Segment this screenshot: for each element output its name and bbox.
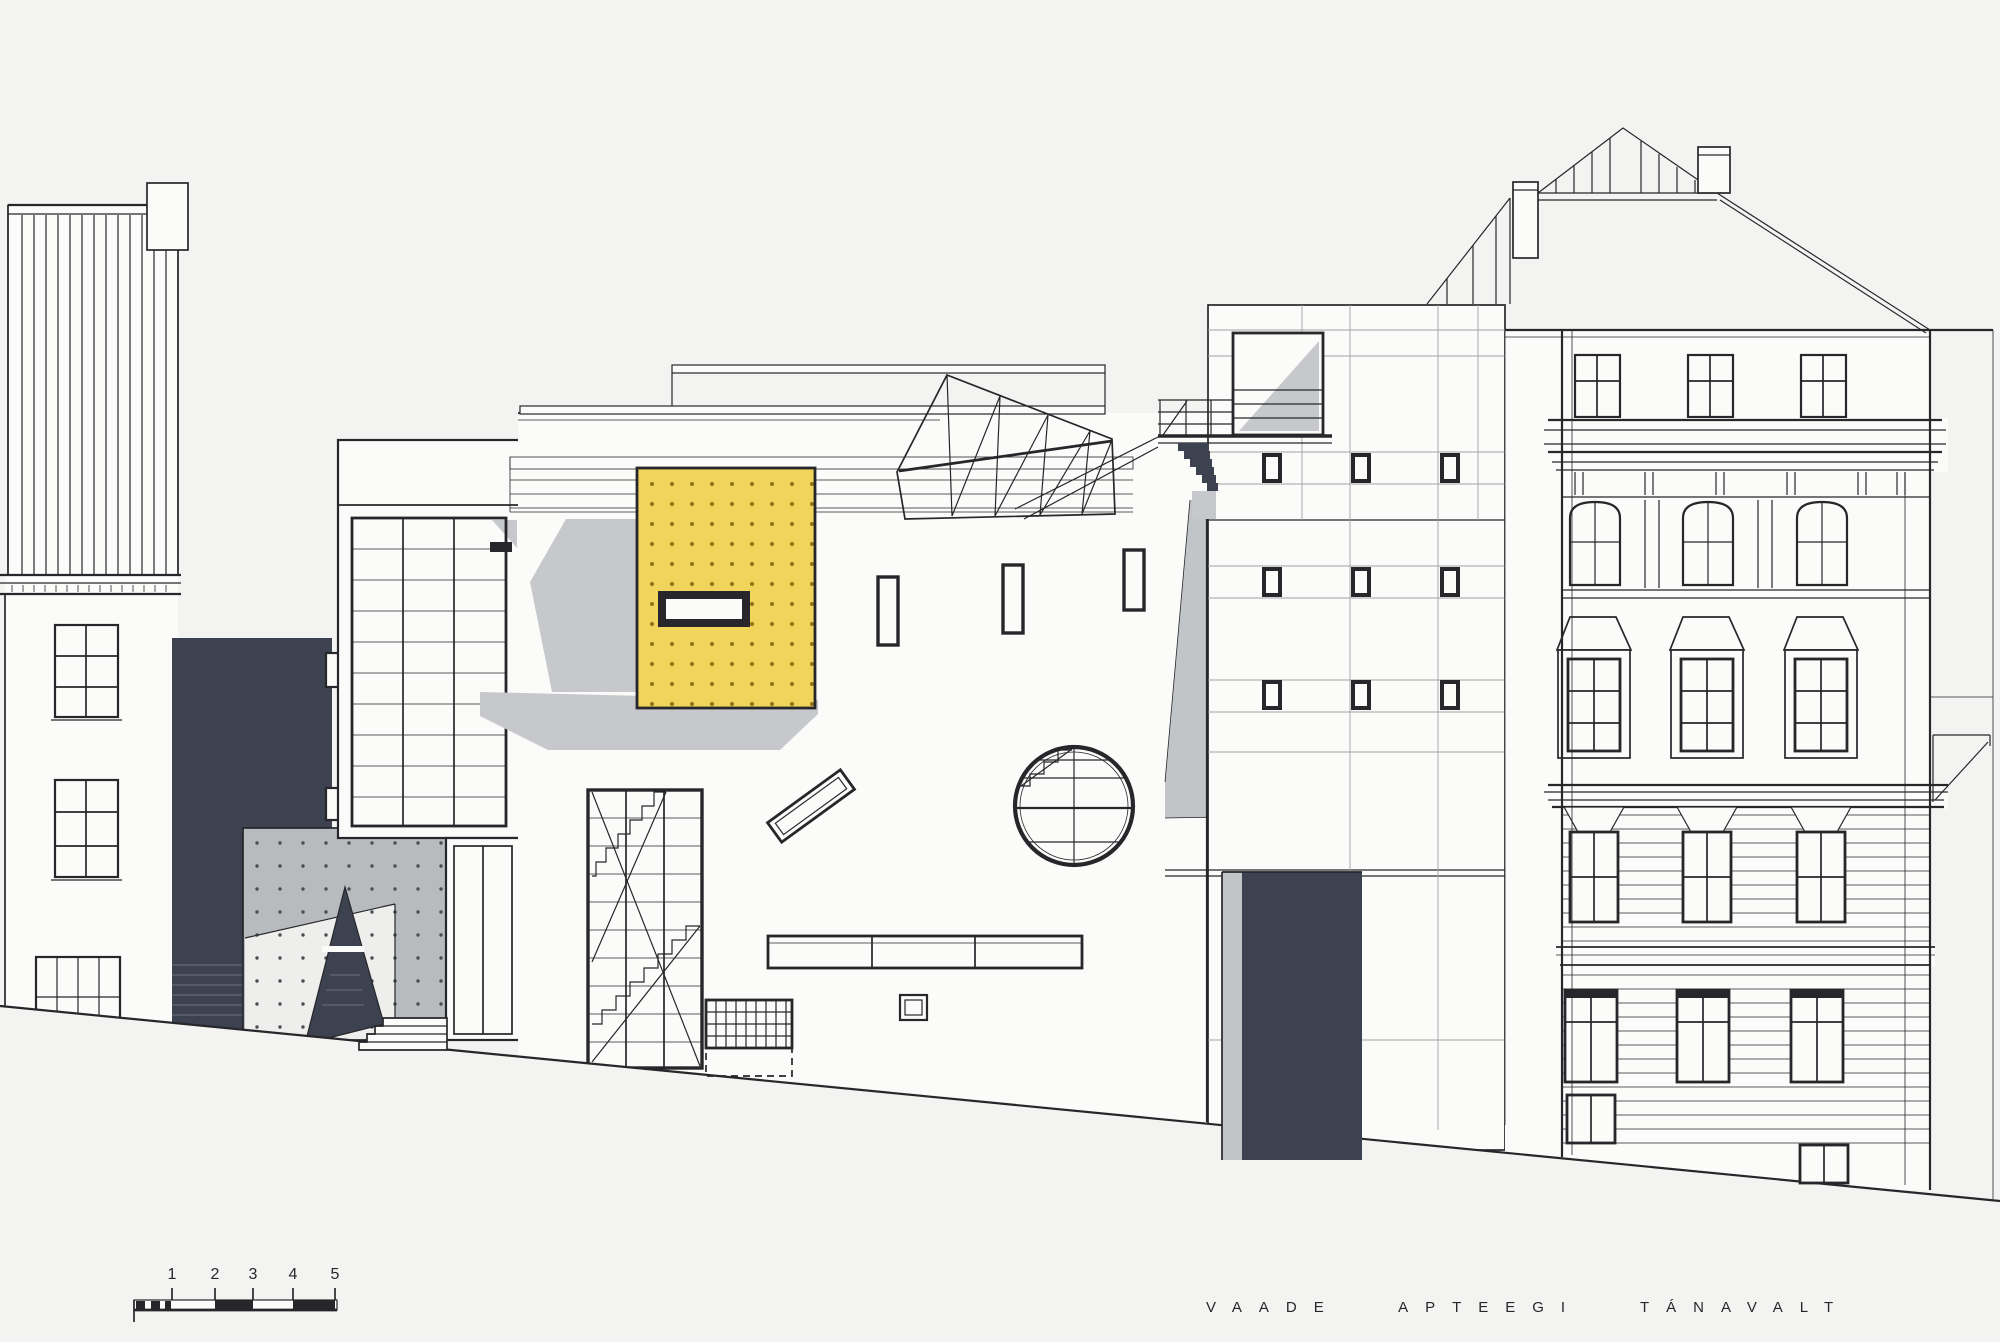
stair-window [588,790,702,1068]
scale-label-3: 3 [249,1266,258,1283]
entry-door [446,838,520,1040]
scale-label-4: 4 [289,1266,298,1283]
yellow-panel [637,468,815,708]
scale-label-1: 1 [168,1266,177,1283]
basement-grille [706,1000,792,1048]
drawing-caption: VAADE APTEEGI TÁNAVALT [1206,1299,1850,1316]
dotted-entrance-panel [243,828,446,1044]
sill-band [1556,945,1935,967]
lower-cornice [1544,783,1948,809]
architectural-elevation-drawing: 1 2 3 4 5 VAADE APTEEGI TÁNAVALT [0,0,2000,1342]
scale-label-5: 5 [331,1266,340,1283]
striped-tower [8,183,188,575]
scale-label-2: 2 [211,1266,220,1283]
dark-retaining-wall [1222,872,1362,1160]
elevation-canvas: 1 2 3 4 5 VAADE APTEEGI TÁNAVALT [0,0,2000,1342]
house-window-upper [51,625,122,720]
rooftop-box [147,183,188,250]
band-window [768,936,1082,968]
left-house [0,575,181,1037]
yellow-panel-slot-window [658,591,750,627]
small-window [900,995,927,1020]
basement-window-right [1800,1145,1848,1183]
house-window-middle [51,780,122,880]
attic-windows [1571,355,1850,420]
rooftop-box [1233,333,1323,435]
